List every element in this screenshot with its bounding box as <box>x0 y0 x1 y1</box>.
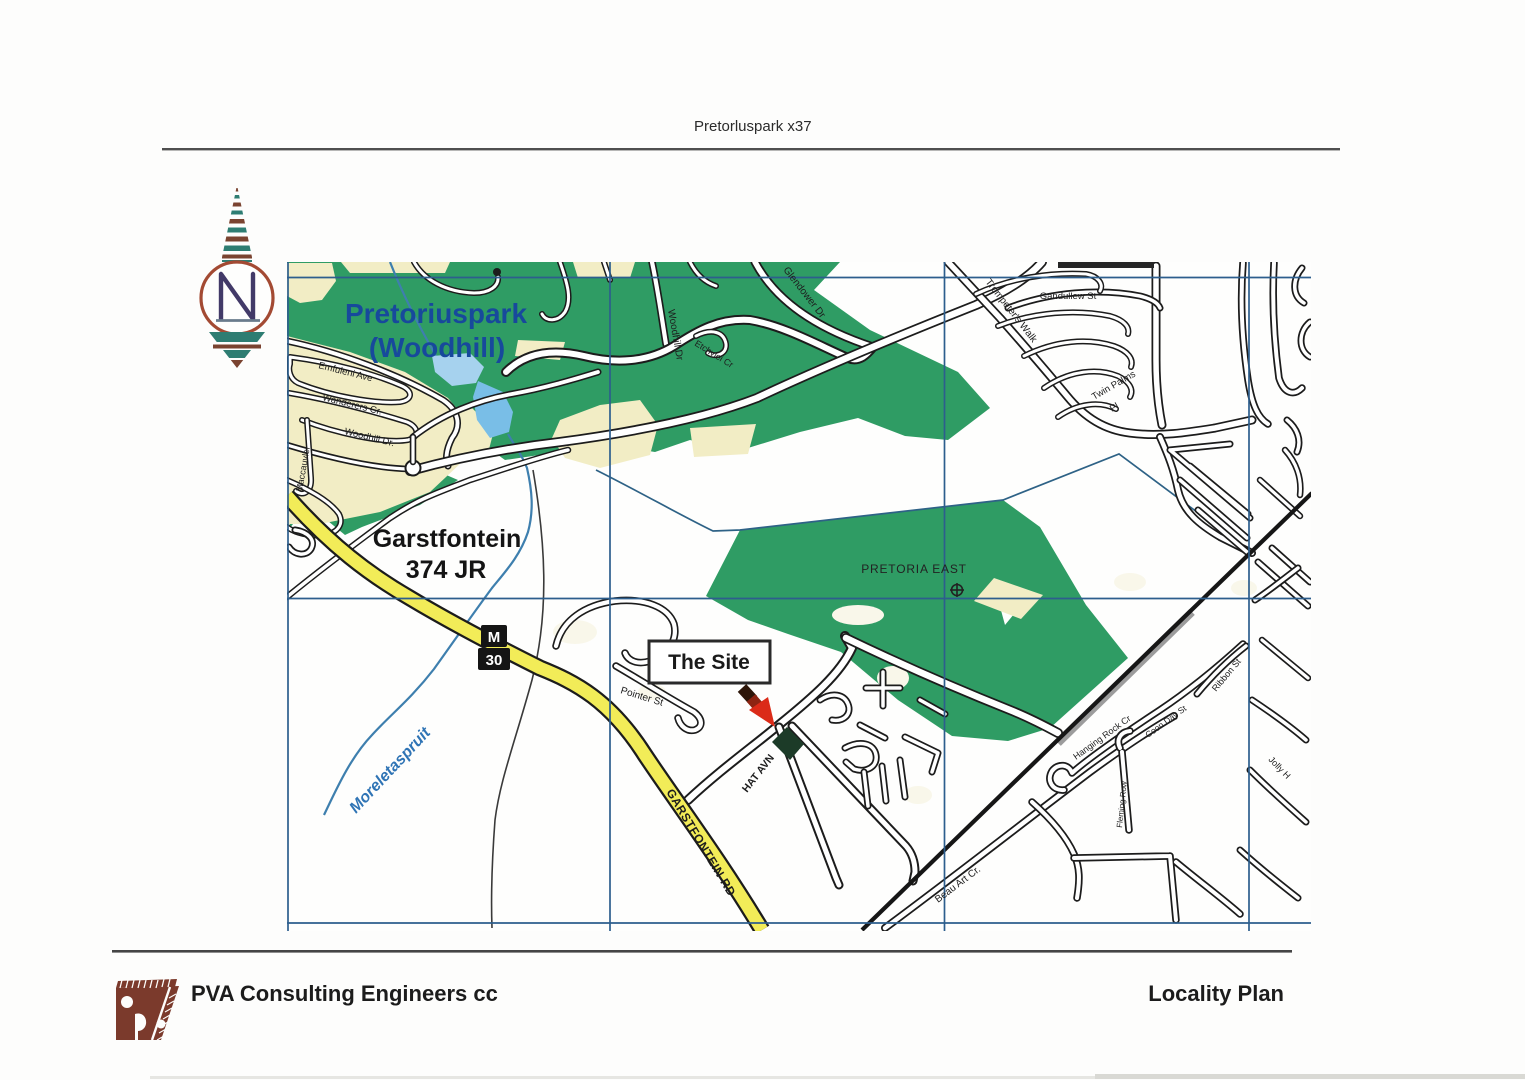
svg-text:PRETORIA EAST: PRETORIA EAST <box>861 562 967 576</box>
svg-text:The Site: The Site <box>668 651 750 674</box>
svg-text:30: 30 <box>486 652 503 669</box>
svg-text:Pretoriuspark: Pretoriuspark <box>345 298 527 329</box>
svg-text:374 JR: 374 JR <box>406 556 487 584</box>
svg-text:Pretorluspark x37: Pretorluspark x37 <box>694 118 812 135</box>
svg-text:(Woodhill): (Woodhill) <box>369 332 505 363</box>
svg-text:Locality Plan: Locality Plan <box>1148 981 1284 1006</box>
svg-text:Gandullew St: Gandullew St <box>1040 291 1097 302</box>
svg-text:PVA Consulting Engineers cc: PVA Consulting Engineers cc <box>191 981 498 1006</box>
svg-text:M: M <box>488 629 501 646</box>
svg-text:Garstfontein: Garstfontein <box>373 525 522 553</box>
